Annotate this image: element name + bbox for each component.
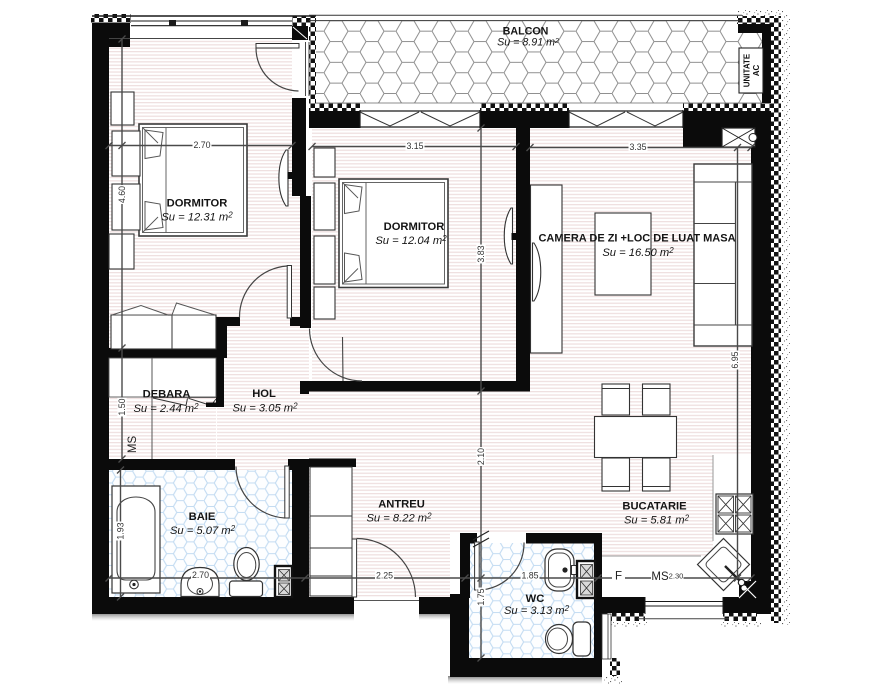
svg-text:Su = 3.05 m2: Su = 3.05 m2	[232, 402, 298, 415]
svg-text:HOL: HOL	[252, 388, 276, 400]
svg-text:Su = 12.04 m2: Su = 12.04 m2	[375, 234, 447, 247]
svg-text:UNITATE: UNITATE	[743, 53, 752, 87]
svg-text:2.70: 2.70	[192, 570, 209, 580]
svg-text:3.83: 3.83	[476, 245, 486, 262]
svg-text:MS: MS	[651, 571, 669, 583]
svg-text:1.93: 1.93	[116, 522, 126, 539]
svg-text:Su = 8.22 m2: Su = 8.22 m2	[366, 512, 432, 525]
svg-text:1.85: 1.85	[521, 571, 538, 581]
svg-text:2.10: 2.10	[476, 448, 486, 465]
svg-text:3.35: 3.35	[629, 142, 646, 152]
svg-text:Su = 5.81 m2: Su = 5.81 m2	[624, 514, 690, 527]
svg-text:Su = 12.31 m2: Su = 12.31 m2	[161, 211, 233, 224]
svg-text:Su = 16.50 m2: Su = 16.50 m2	[602, 246, 674, 259]
svg-text:4.60: 4.60	[117, 186, 127, 203]
svg-text:DORMITOR: DORMITOR	[384, 221, 445, 233]
svg-text:BUCATARIE: BUCATARIE	[622, 501, 687, 513]
svg-text:MS: MS	[127, 436, 139, 454]
svg-text:2.25: 2.25	[376, 571, 393, 581]
svg-text:Su = 2.44 m2: Su = 2.44 m2	[133, 402, 199, 415]
svg-text:Su = 5.07 m2: Su = 5.07 m2	[170, 524, 236, 537]
svg-text:Su = 3.13 m2: Su = 3.13 m2	[504, 604, 570, 617]
svg-text:Su = 8.91 m2: Su = 8.91 m2	[497, 37, 559, 49]
svg-text:F: F	[615, 571, 622, 583]
svg-text:6.95: 6.95	[730, 351, 740, 368]
svg-text:DEBARA: DEBARA	[143, 389, 191, 401]
svg-text:1.50: 1.50	[117, 398, 127, 415]
svg-text:AC: AC	[752, 65, 761, 77]
svg-text:DORMITOR: DORMITOR	[167, 198, 228, 210]
svg-text:2.70: 2.70	[193, 140, 210, 150]
svg-text:3.15: 3.15	[406, 141, 423, 151]
svg-text:2.30: 2.30	[669, 571, 684, 580]
svg-text:1.75: 1.75	[476, 588, 486, 605]
svg-text:BAIE: BAIE	[189, 511, 216, 523]
svg-text:WC: WC	[526, 593, 545, 605]
svg-text:CAMERA DE ZI +LOC DE LUAT MASA: CAMERA DE ZI +LOC DE LUAT MASA	[538, 233, 735, 245]
svg-text:ANTREU: ANTREU	[378, 499, 425, 511]
